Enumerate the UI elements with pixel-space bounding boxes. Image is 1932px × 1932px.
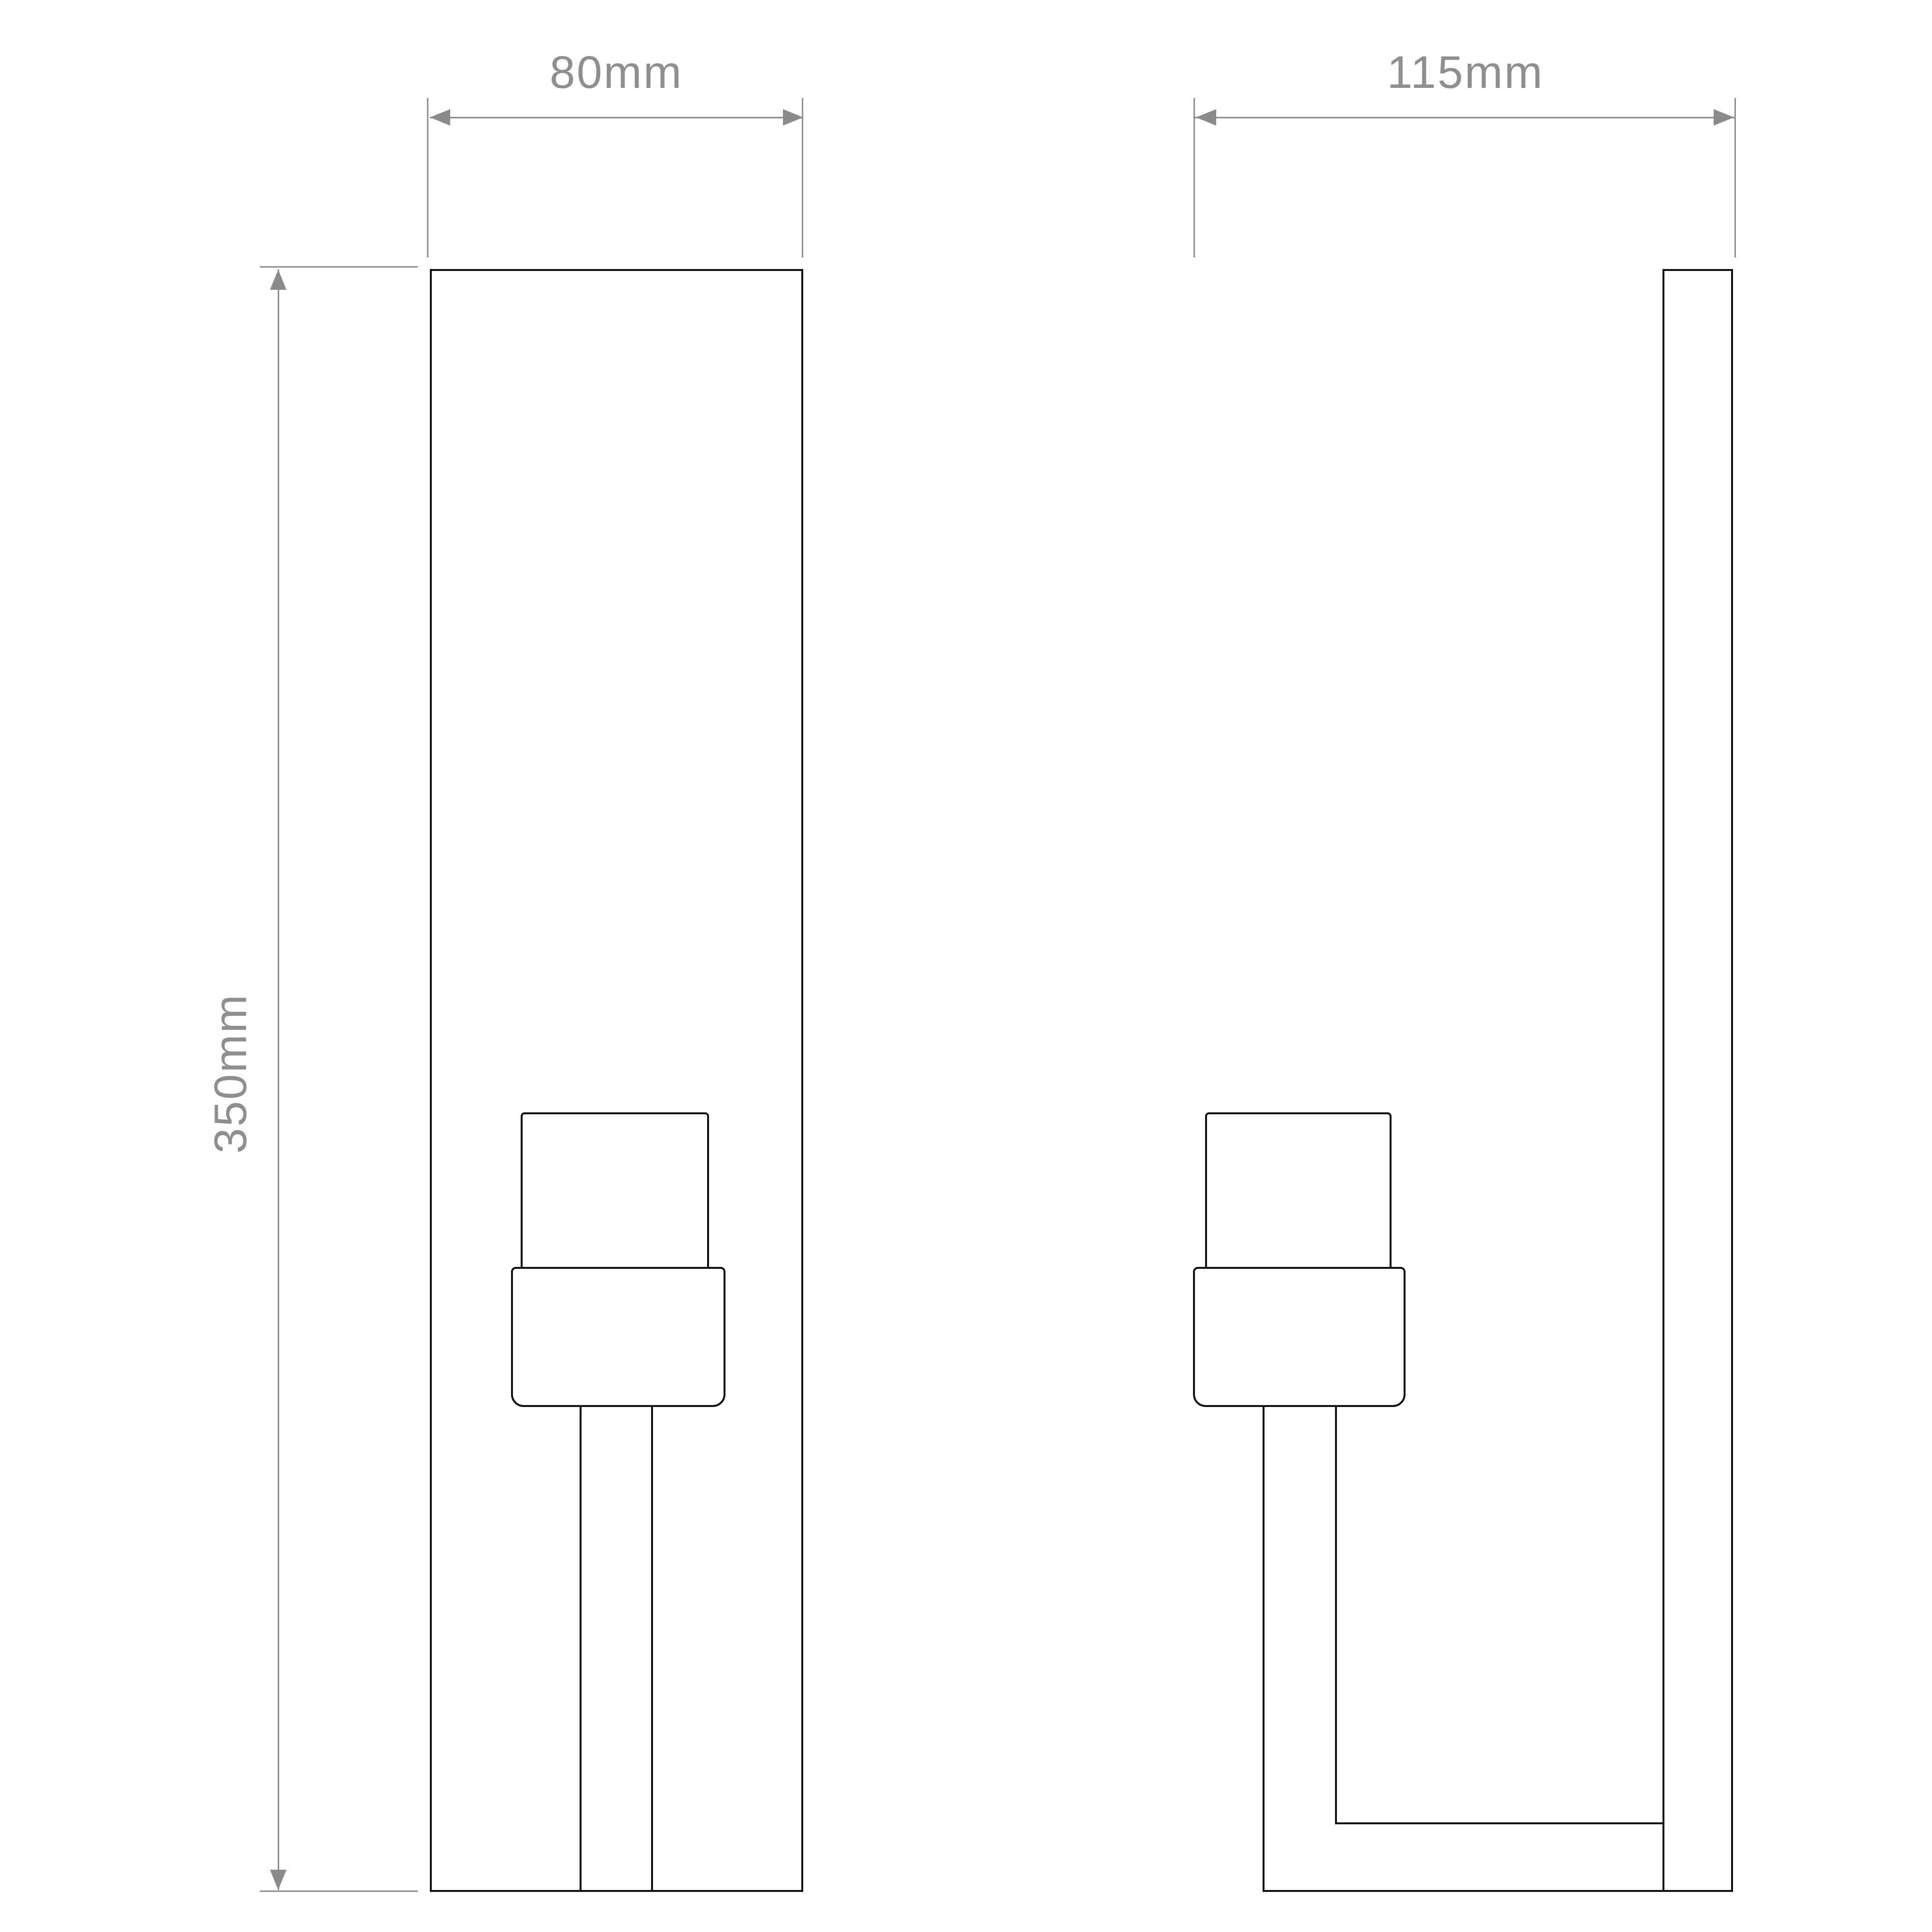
front-stem-right-line xyxy=(651,1407,653,1892)
front-candle-holder xyxy=(511,1267,725,1407)
arrowhead-left-icon xyxy=(430,109,450,126)
arrowhead-right-icon xyxy=(783,109,803,126)
height-extension-line-bottom xyxy=(260,1890,418,1892)
side-arm-inner-vertical-line xyxy=(1335,1407,1337,1824)
front-width-label: 80mm xyxy=(496,43,737,103)
side-depth-extension-line-right xyxy=(1734,98,1736,257)
side-candle-tube xyxy=(1205,1112,1392,1269)
arrowhead-up-icon xyxy=(270,270,286,290)
arrowhead-down-icon xyxy=(270,1870,286,1890)
front-backplate xyxy=(430,269,803,1892)
front-width-dimension-line xyxy=(430,117,803,118)
height-dimension-line xyxy=(278,270,279,1890)
arrowhead-right-icon xyxy=(1714,109,1734,126)
side-depth-label: 115mm xyxy=(1345,43,1586,103)
side-candle-holder xyxy=(1193,1267,1406,1407)
side-arm-outer-vertical-line xyxy=(1263,1407,1264,1892)
side-depth-extension-line-left xyxy=(1193,98,1195,257)
front-stem-left-line xyxy=(580,1407,582,1892)
height-label: 350mm xyxy=(201,953,261,1194)
front-candle-tube xyxy=(521,1112,709,1269)
arrowhead-left-icon xyxy=(1196,109,1216,126)
height-extension-line-top xyxy=(260,266,418,268)
side-arm-inner-horizontal-line xyxy=(1335,1822,1664,1824)
dimension-drawing-canvas: 80mm 115mm 350mm xyxy=(0,0,1932,1932)
side-depth-dimension-line xyxy=(1195,117,1735,118)
side-backplate-bar xyxy=(1662,269,1733,1892)
side-arm-outer-horizontal-line xyxy=(1263,1890,1733,1892)
front-width-extension-line-left xyxy=(427,98,428,257)
